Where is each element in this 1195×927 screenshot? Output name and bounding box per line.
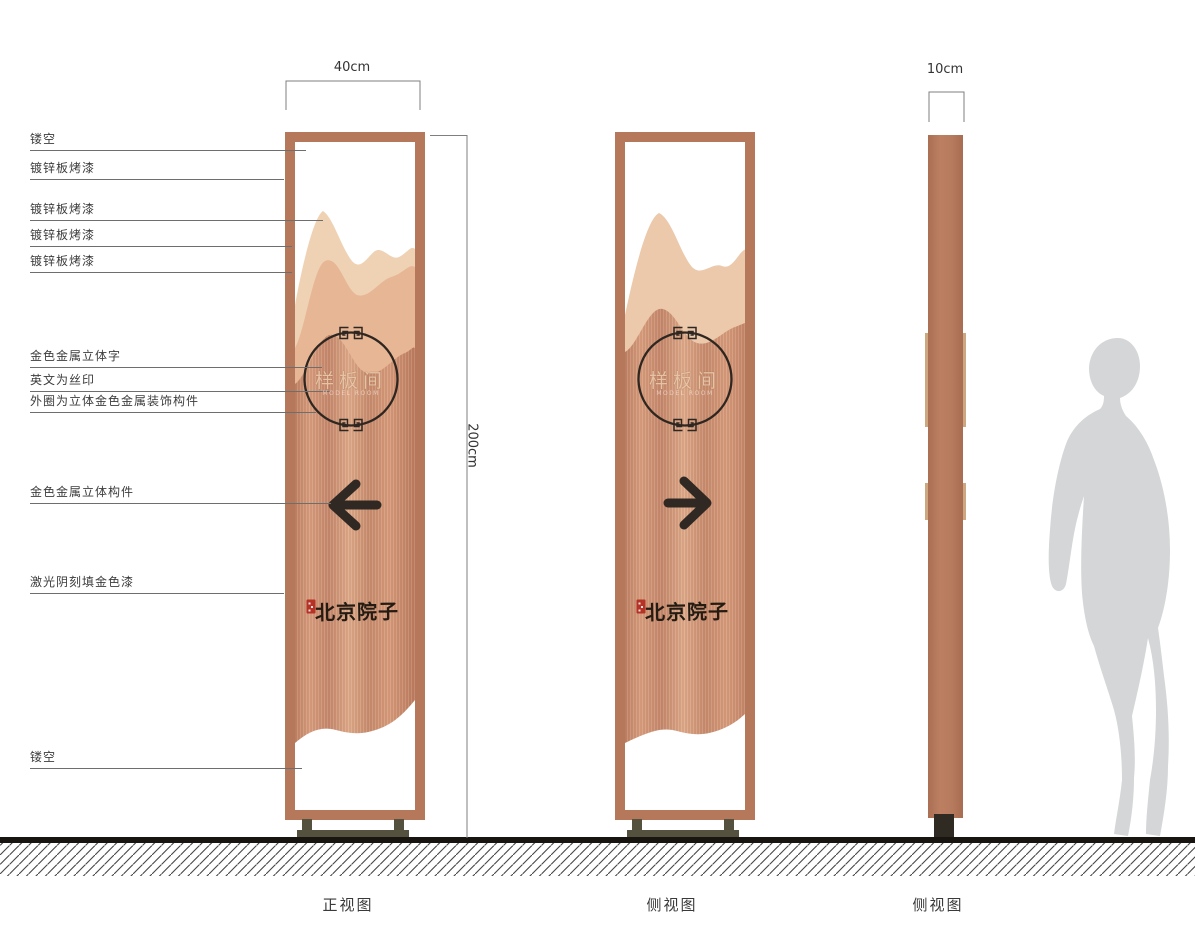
annotation-english-silkscreen: 英文为丝印 [30,373,330,392]
brand-text: 北京院子 [645,595,729,625]
side1-base-bracket [627,819,739,838]
room-label-text: 样板间 [315,370,387,392]
annotation-galvanized-4: 镀锌板烤漆 [30,254,292,273]
annotation-gold-metal-component: 金色金属立体构件 [30,485,331,504]
front-base-bracket [297,819,409,838]
annotation-laser-engraved: 激光阴刻填金色漆 [30,575,284,594]
room-label-text: 样板间 [649,370,721,392]
side-width-value: 10cm [927,62,963,77]
annotation-outer-ring: 外圈为立体金色金属装饰构件 [30,394,316,413]
annotation-label: 英文为丝印 [30,373,330,391]
annotation-hollow-bottom: 镂空 [30,750,302,769]
annotation-label: 镀锌板烤漆 [30,202,323,220]
ground-line [0,837,1195,876]
height-dim-line [430,136,467,839]
human-silhouette [1049,338,1170,836]
room-label-en-text: MODEL ROOM [656,390,713,397]
caption-front-view: 正视图 [298,894,398,915]
annotation-gold-metal-text: 金色金属立体字 [30,349,322,368]
annotation-label: 镀锌板烤漆 [30,254,292,272]
width-dim-bracket-front [286,81,420,110]
signage-drawing-sheet: 40cm 10cm 200cm 镂空 镀锌板烤漆 镀锌板烤漆 镀锌板烤漆 镀锌板… [0,0,1195,927]
width-dim-bracket-side [929,92,964,122]
annotation-label: 镂空 [30,132,306,150]
front-width-value: 40cm [334,60,370,75]
side1-brand-logo: 北京院子 [628,596,746,625]
side1-room-label: 样板间 [637,366,733,393]
height-dimension-label: 200cm [465,416,480,476]
caption-side-view-1: 侧视图 [622,894,722,915]
annotation-label: 激光阴刻填金色漆 [30,575,284,593]
annotation-label: 金色金属立体字 [30,349,322,367]
caption-text: 侧视图 [912,896,963,914]
annotation-hollow-top: 镂空 [30,132,306,151]
front-room-label: 样板间 [303,366,399,393]
height-value: 200cm [465,423,480,468]
brand-text: 北京院子 [315,595,399,625]
annotation-label: 镂空 [30,750,302,768]
annotation-galvanized-1: 镀锌板烤漆 [30,161,284,180]
profile-base-block [934,814,954,838]
front-width-dimension-label: 40cm [312,60,392,75]
front-room-label-en: MODEL ROOM [303,390,399,397]
caption-text: 正视图 [322,896,373,914]
annotation-label: 外圈为立体金色金属装饰构件 [30,394,316,412]
annotation-label: 镀锌板烤漆 [30,161,284,179]
annotation-label: 金色金属立体构件 [30,485,331,503]
side-view-2-profile [925,135,966,838]
annotation-label: 镀锌板烤漆 [30,228,292,246]
room-label-en-text: MODEL ROOM [322,390,379,397]
profile-column [928,135,963,818]
caption-text: 侧视图 [646,896,697,914]
front-brand-logo: 北京院子 [298,596,416,625]
ground-hatching [0,843,1195,876]
annotation-galvanized-2: 镀锌板烤漆 [30,202,323,221]
caption-side-view-2: 侧视图 [888,894,988,915]
side-width-dimension-label: 10cm [905,62,985,77]
annotation-galvanized-3: 镀锌板烤漆 [30,228,292,247]
side-view-1-pillar [615,132,755,838]
side1-room-label-en: MODEL ROOM [637,390,733,397]
